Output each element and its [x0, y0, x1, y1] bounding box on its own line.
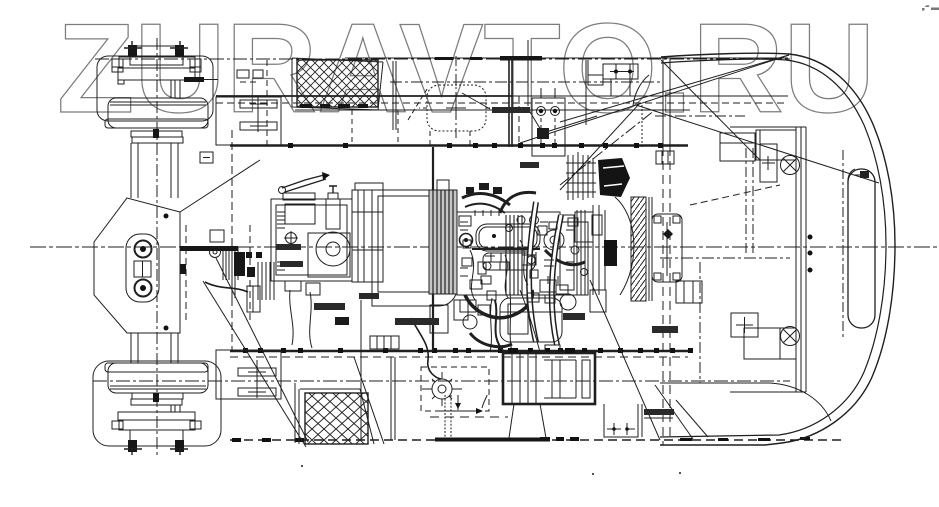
svg-text:ZURAVTO.RU: ZURAVTO.RU [57, 0, 875, 139]
